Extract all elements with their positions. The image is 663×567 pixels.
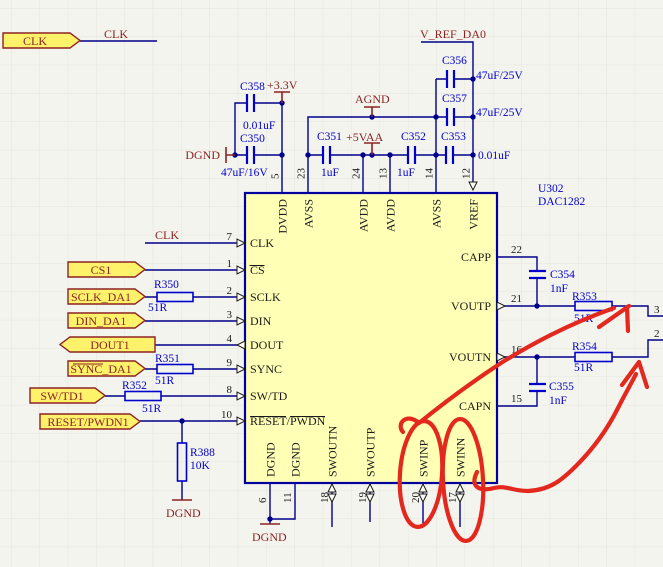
port-dout-label: DOUT1 [90, 338, 129, 352]
pin-num-7: 7 [227, 231, 233, 243]
port-reset-label: RESET/PWDN1 [47, 415, 128, 429]
port-swtd-label: SW/TD1 [40, 389, 83, 403]
power-5vaa-label: +5VAA [346, 130, 384, 144]
netlabel-clk-pin[interactable]: CLK [155, 228, 179, 242]
c358-ref: C358 [240, 81, 265, 93]
power-agnd-label: AGND [355, 92, 390, 106]
port-din-label: DIN_DA1 [76, 314, 127, 328]
r351-ref: R351 [155, 353, 180, 365]
c357-ref: C357 [442, 93, 467, 105]
pin-name-sclk: SCLK [250, 290, 281, 304]
pin-num-8: 8 [227, 384, 233, 396]
port-cs1-label: CS1 [91, 263, 112, 277]
power-dgnd-ic-label: DGND [252, 530, 287, 544]
pin-num-2: 2 [227, 285, 233, 297]
pin-name-swinp: SWINP [417, 439, 431, 477]
c353-ref: C353 [441, 131, 466, 143]
pin-name-voutn: VOUTN [449, 350, 491, 364]
c350-value: 47uF/16V [221, 167, 268, 179]
schematic-page: U302 DAC1282 CLK CS SCLK DIN DOUT SYNC S… [0, 0, 663, 567]
c354-ref: C354 [550, 269, 575, 281]
power-dgnd-top-label: DGND [185, 148, 220, 162]
pin-num-15: 15 [511, 393, 523, 405]
pin-num-5: 5 [270, 173, 282, 179]
pin-num-12: 12 [461, 168, 473, 179]
pin-num-6: 6 [257, 497, 269, 503]
pin-num-3: 3 [227, 309, 233, 321]
power-dgnd-r388-label: DGND [166, 506, 201, 520]
pin-num-10: 10 [221, 409, 233, 421]
netlabel-vref-da0[interactable]: V_REF_DA0 [420, 27, 486, 41]
netlabel-clk-top[interactable]: CLK [104, 27, 128, 41]
c355-ref: C355 [549, 381, 574, 393]
pin-num-4: 4 [227, 333, 233, 345]
r388-ref: R388 [190, 447, 215, 459]
c351-value: 1uF [321, 167, 339, 179]
r353-ref: R353 [572, 291, 597, 303]
pin-name-clk: CLK [250, 236, 274, 250]
pin-name-swoutp: SWOUTP [364, 427, 378, 477]
pin-num-23: 23 [296, 168, 308, 180]
c352-value: 1uF [397, 167, 415, 179]
r351-value: 51R [155, 375, 175, 387]
c354-value: 1nF [550, 283, 568, 295]
pin-name-swtd: SW/TD [250, 389, 288, 403]
pin-name-avdd2: AVDD [384, 199, 398, 232]
ic-part-number: DAC1282 [538, 196, 586, 208]
pin-num-22: 22 [511, 244, 522, 256]
port-clk-label: CLK [23, 34, 47, 48]
pin-name-voutp: VOUTP [451, 299, 491, 313]
pin-num-21: 21 [511, 293, 522, 305]
c357-value: 47uF/25V [476, 107, 523, 119]
pin-name-din: DIN [250, 314, 272, 328]
pin-name-vref: VREF [467, 199, 481, 230]
ic-designator: U302 [538, 183, 564, 195]
r350-ref: R350 [154, 279, 179, 291]
pin-num-9: 9 [227, 357, 233, 369]
pin-name-avss2: AVSS [430, 199, 444, 228]
pin-num-13: 13 [378, 168, 390, 180]
port-sclk-label: SCLK_DA1 [71, 290, 131, 304]
c356-value: 47uF/25V [476, 70, 523, 82]
power-3v3-label: +3.3V [267, 78, 298, 92]
pin-name-dout: DOUT [250, 338, 284, 352]
c356-ref: C356 [442, 55, 467, 67]
c353-value: 0.01uF [478, 150, 510, 162]
r352-value: 51R [142, 403, 162, 415]
pin-num-24: 24 [351, 168, 363, 180]
pin-name-swoutn: SWOUTN [326, 425, 340, 477]
c351-ref: C351 [317, 131, 342, 143]
c358-value: 0.01uF [243, 120, 275, 132]
pin-num-1: 1 [227, 258, 233, 270]
offsheet-pin-lower: 2 [654, 328, 660, 340]
pin-name-sync: SYNC [250, 362, 282, 376]
schematic-canvas: U302 DAC1282 CLK CS SCLK DIN DOUT SYNC S… [0, 0, 663, 567]
r354-value: 51R [574, 362, 594, 374]
pin-num-11: 11 [282, 492, 294, 503]
pin-name-dgnd6: DGND [264, 442, 278, 477]
r388-value: 10K [190, 460, 211, 472]
pin-name-capn: CAPN [459, 399, 491, 413]
r352-ref: R352 [122, 380, 147, 392]
pin-name-capp: CAPP [461, 250, 491, 264]
c350-ref: C350 [240, 133, 265, 145]
pin-name-swinn: SWINN [454, 437, 468, 477]
r350-value: 51R [148, 302, 168, 314]
pin-num-14: 14 [424, 168, 436, 180]
c352-ref: C352 [401, 131, 426, 143]
pin-name-avss1: AVSS [302, 199, 316, 228]
offsheet-pin-upper: 3 [654, 304, 660, 316]
c355-value: 1nF [549, 395, 567, 407]
pin-name-dvdd: DVDD [276, 199, 290, 234]
r354-ref: R354 [572, 341, 597, 353]
pin-name-avdd1: AVDD [357, 199, 371, 232]
pin-name-dgnd11: DGND [289, 442, 303, 477]
